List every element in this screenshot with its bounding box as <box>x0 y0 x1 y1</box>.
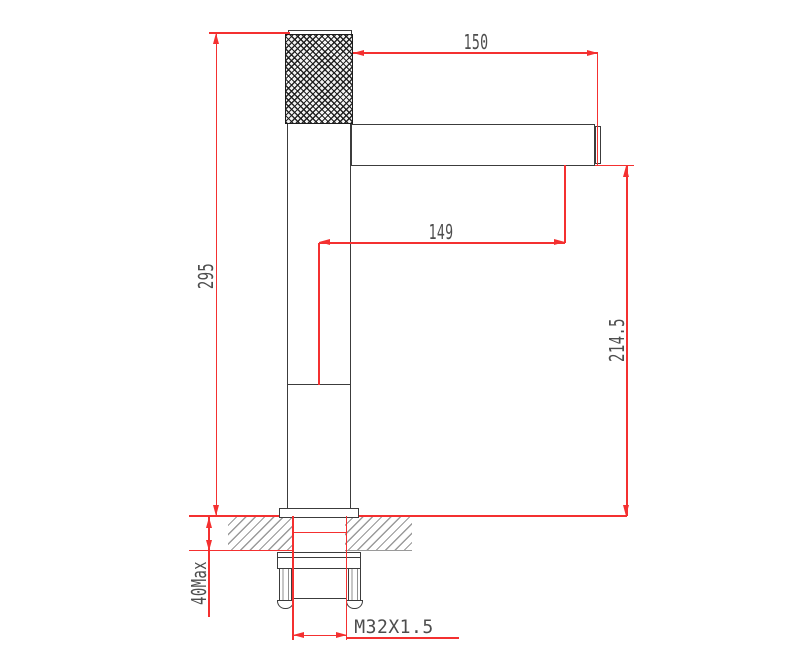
dim-m32-arrow-right <box>336 632 347 638</box>
dim-2145-arrow-top <box>623 166 629 177</box>
thread-extension-left <box>292 516 294 640</box>
dim-149-arrow-left <box>319 239 330 245</box>
dim-2145-arrow-bottom <box>623 505 629 516</box>
dim-150-arrow-right <box>587 50 598 56</box>
dim-m32-label: M32X1.5 <box>354 616 433 638</box>
dim-149-extension-right <box>564 165 565 243</box>
countertop-hatch-left <box>228 517 293 551</box>
dim-295-arrow-top <box>213 33 219 44</box>
dim-2145-label: 214.5 <box>605 318 629 362</box>
stud-cap-right <box>346 600 363 609</box>
dim-150-extension <box>597 53 598 165</box>
dim-150-arrow-left <box>353 50 364 56</box>
knurled-handle <box>285 34 353 124</box>
dim-149-extension-left <box>318 243 319 385</box>
technical-drawing-canvas: 150 149 295 214.5 40Max M32X1.5 <box>0 0 800 667</box>
dim-149-label: 149 <box>429 220 454 244</box>
dim-40max-arrow-top <box>206 517 212 528</box>
thread-extension-right <box>346 516 348 640</box>
deck-hole-inner-line <box>293 532 346 534</box>
dim-m32-arrow-left <box>293 632 304 638</box>
dim-295-label: 295 <box>194 263 218 289</box>
dim-149-arrow-right <box>554 239 565 245</box>
dim-295-arrow-bottom <box>213 505 219 516</box>
mounting-stud-right <box>348 568 361 603</box>
dim-295-extension-top <box>209 32 290 33</box>
dim-40max-label: 40Max <box>187 561 211 605</box>
mounting-stud-left <box>279 568 292 603</box>
dim-150-label: 150 <box>464 30 489 54</box>
dim-40max-arrow-bottom <box>206 540 212 551</box>
spout <box>351 124 595 166</box>
thread-shank-bottom-line <box>293 598 347 600</box>
countertop-hatch-right <box>345 517 412 551</box>
